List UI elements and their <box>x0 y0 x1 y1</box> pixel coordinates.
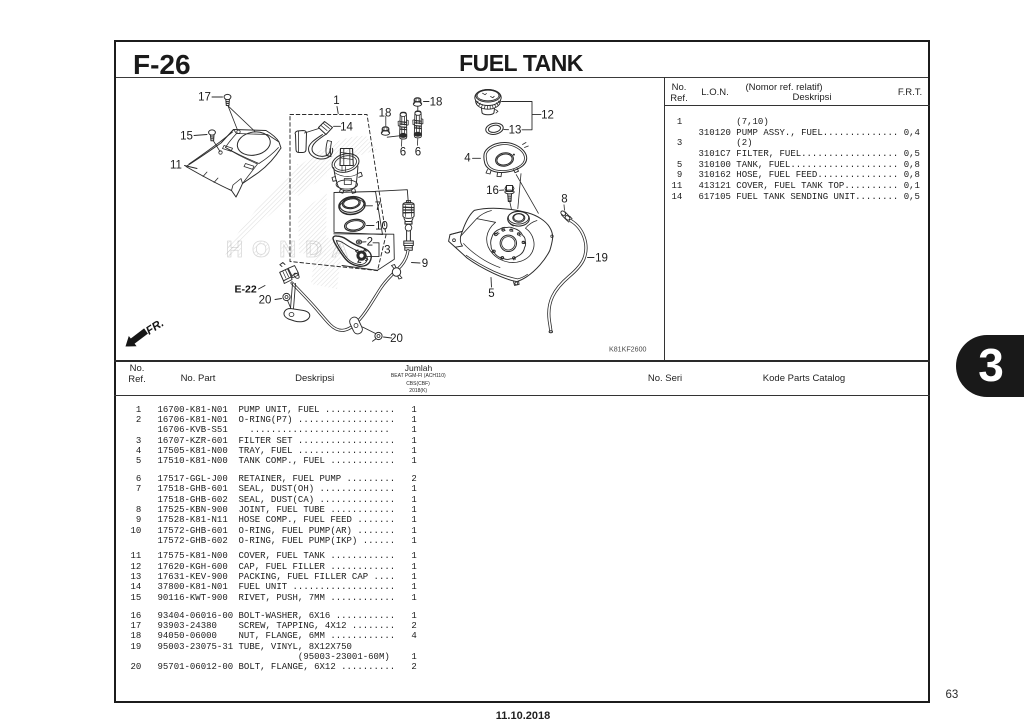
svg-text:20: 20 <box>259 295 272 307</box>
svg-text:6: 6 <box>415 147 421 159</box>
svg-text:FR.: FR. <box>144 317 166 337</box>
svg-text:11: 11 <box>170 160 182 172</box>
svg-text:13: 13 <box>509 125 522 137</box>
svg-text:6: 6 <box>400 147 406 159</box>
svg-text:15: 15 <box>180 131 193 143</box>
svg-text:9: 9 <box>422 258 428 270</box>
svg-text:14: 14 <box>340 122 353 134</box>
svg-text:5: 5 <box>488 288 494 300</box>
svg-text:3: 3 <box>384 244 390 256</box>
svg-text:E-22: E-22 <box>235 284 257 296</box>
svg-text:7: 7 <box>375 201 381 213</box>
svg-text:1: 1 <box>333 95 339 107</box>
svg-text:18: 18 <box>379 108 392 120</box>
svg-text:17: 17 <box>198 92 211 104</box>
svg-text:20: 20 <box>390 333 403 345</box>
svg-text:16: 16 <box>486 185 499 197</box>
svg-text:8: 8 <box>561 194 567 206</box>
svg-text:K81KF2600: K81KF2600 <box>609 346 647 354</box>
svg-text:HONDA: HONDA <box>226 236 357 262</box>
svg-text:12: 12 <box>541 109 554 121</box>
svg-text:2: 2 <box>367 237 373 249</box>
svg-text:19: 19 <box>595 253 608 265</box>
svg-text:4: 4 <box>464 153 471 165</box>
svg-text:10: 10 <box>375 220 388 232</box>
svg-text:18: 18 <box>430 97 443 109</box>
